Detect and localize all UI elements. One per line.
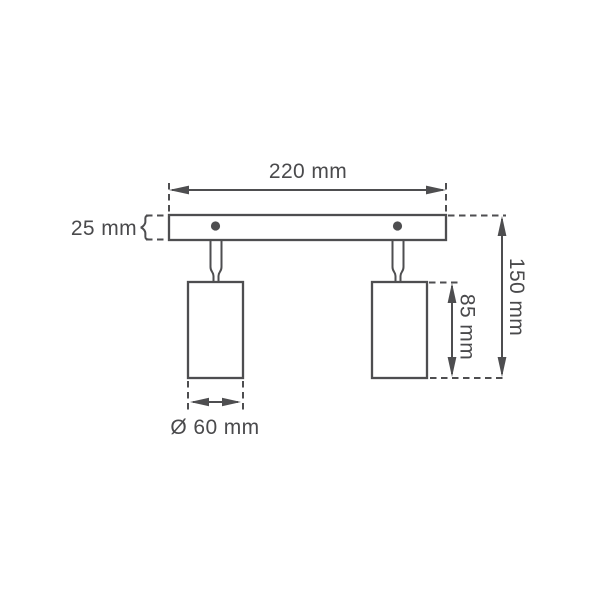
drawing-canvas: 220 mm 25 mm 150 mm 85 mm: [0, 0, 600, 600]
arrowhead-right: [426, 186, 446, 195]
dimension-brace: [141, 216, 150, 240]
screw-hole-left: [211, 221, 220, 230]
dimension-drawing: 220 mm 25 mm 150 mm 85 mm: [0, 0, 600, 600]
spot-height-dimension-label: 85 mm: [456, 294, 479, 360]
spot-arm-right: [393, 241, 404, 282]
screw-hole-right: [393, 221, 402, 230]
arrowhead-down: [498, 357, 507, 377]
diameter-dimension: Ø 60 mm: [170, 381, 259, 439]
arrowhead-up: [498, 216, 507, 236]
plate-height-dimension-label: 25 mm: [71, 217, 137, 240]
arrowhead-left: [190, 398, 209, 406]
spotlight-left: [188, 282, 243, 378]
arrowhead-left: [169, 186, 189, 195]
arrowhead-right: [222, 398, 241, 406]
spot-arm-left: [211, 241, 222, 282]
spotlight-right: [372, 282, 427, 378]
width-dimension: 220 mm: [169, 160, 446, 214]
arrowhead-up: [448, 283, 457, 303]
spot-height-dimension: 85 mm: [429, 283, 479, 378]
mounting-plate: [169, 215, 446, 240]
arrowhead-down: [448, 357, 457, 377]
diameter-dimension-label: Ø 60 mm: [170, 416, 259, 439]
total-height-dimension-label: 150 mm: [505, 258, 528, 336]
width-dimension-label: 220 mm: [269, 160, 347, 183]
light-fixture: [169, 215, 446, 378]
plate-height-dimension: 25 mm: [71, 216, 167, 241]
